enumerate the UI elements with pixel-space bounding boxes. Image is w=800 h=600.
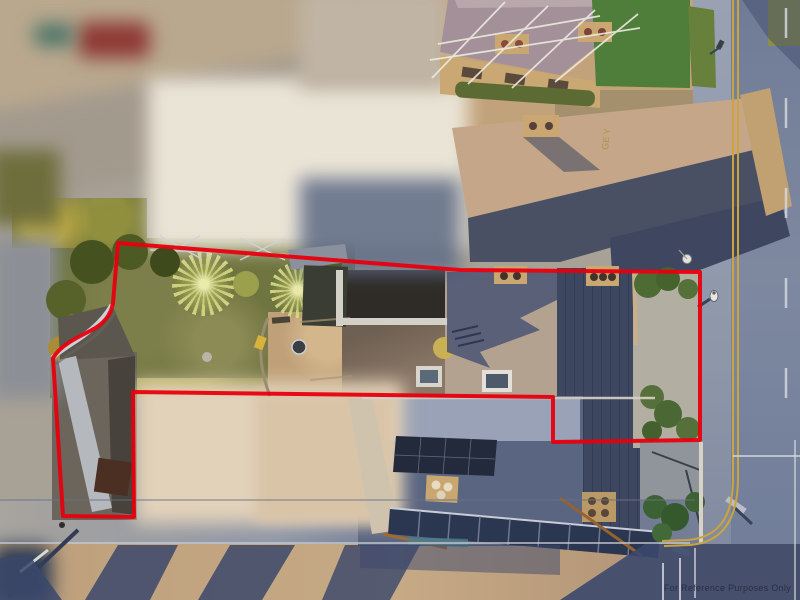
aerial-photo-scene: GE Y For Reference Purposes Only — [0, 0, 800, 600]
bottom-right-yard-details — [643, 442, 705, 545]
extension-details — [336, 270, 448, 387]
gravel-yard-shrubs — [634, 267, 700, 441]
front-building-details — [348, 398, 660, 558]
patio-details — [254, 316, 352, 396]
reference-watermark: For Reference Purposes Only — [664, 583, 791, 593]
victorian-building-roofs — [440, 0, 800, 272]
driveway-details — [52, 305, 135, 515]
detail-overlay: GE Y — [0, 0, 800, 600]
main-roof-details — [447, 266, 636, 392]
